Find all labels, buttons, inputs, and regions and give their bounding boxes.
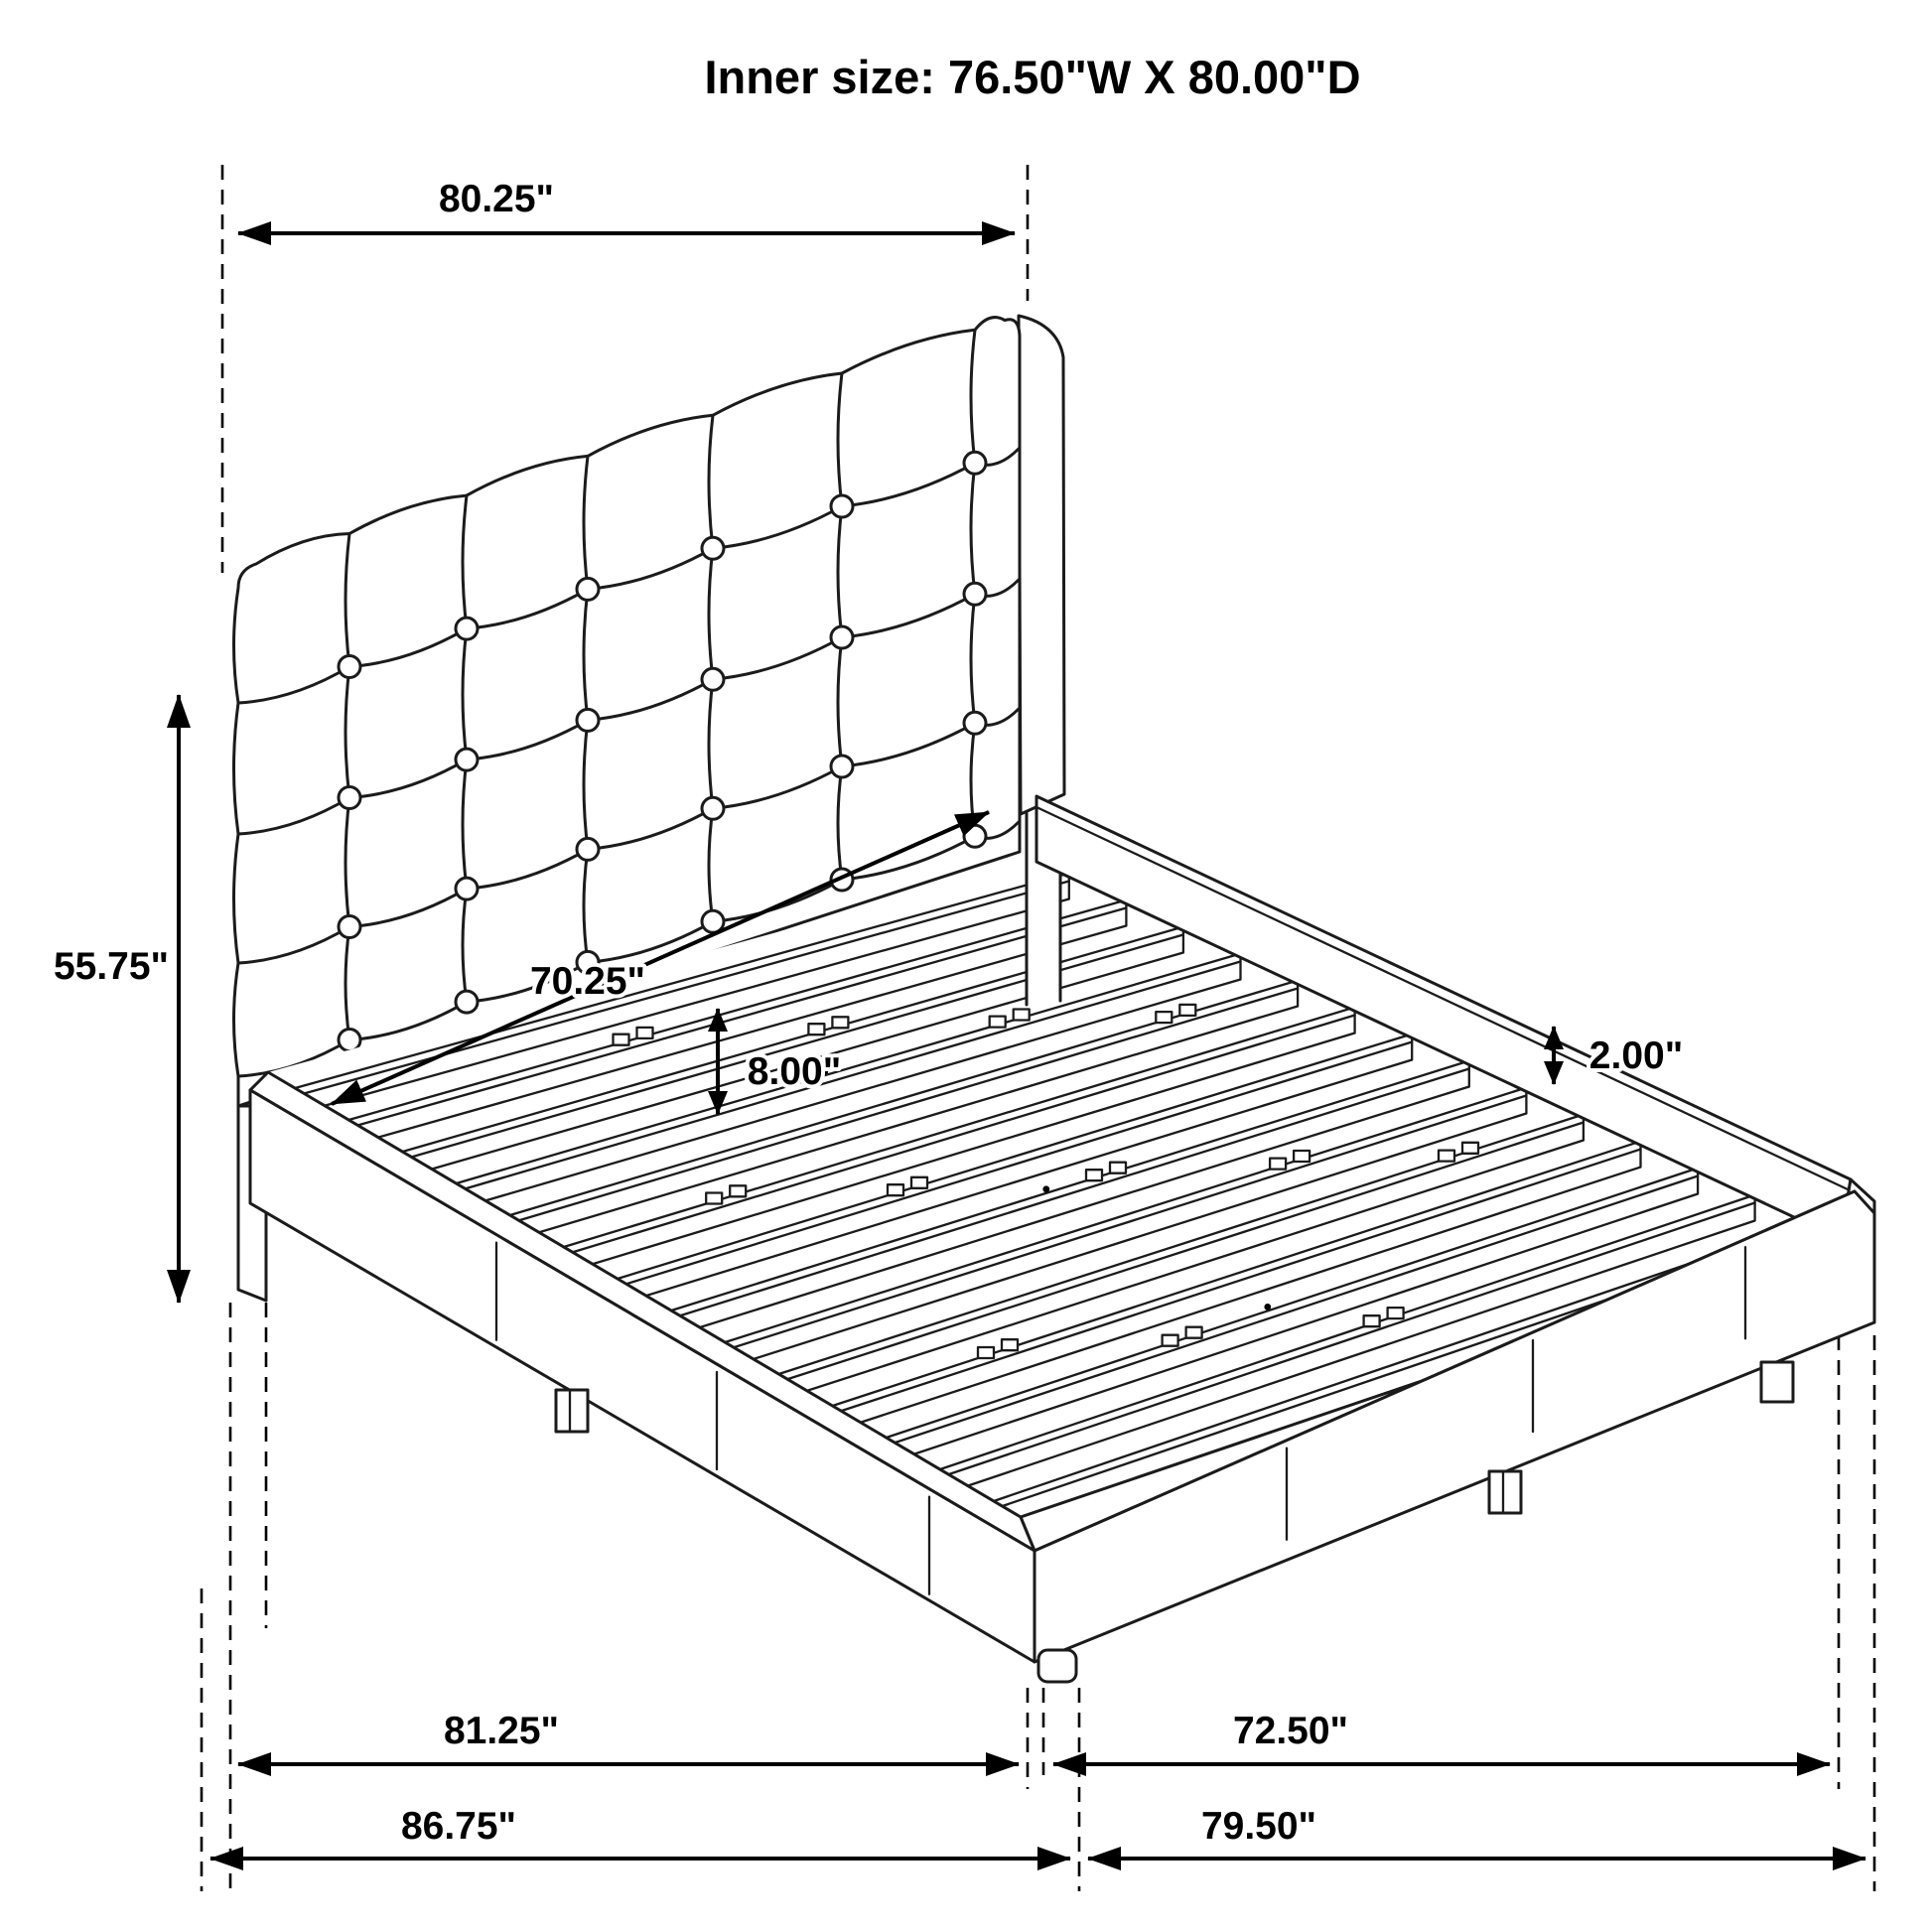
bed-dimension-diagram: Inner size: 76.50"W X 80.00"D 80.25" 55.… [0, 0, 1932, 1932]
dim-label-overall-width: 79.50" [1201, 1805, 1316, 1848]
dim-label-base-width-inner: 72.50" [1233, 1710, 1348, 1752]
dim-label-deck-height: 8.00" [748, 1050, 841, 1093]
bed-dimension-diagram-page: Inner size: 76.50"W X 80.00"D 80.25" 55.… [0, 0, 1932, 1932]
dim-label-overall-length: 86.75" [401, 1805, 516, 1848]
title-text: Inner size: 76.50"W X 80.00"D [704, 51, 1360, 103]
dim-label-top-width: 80.25" [439, 178, 554, 220]
dim-label-base-length-inner: 81.25" [444, 1710, 559, 1752]
dim-label-rail-thickness: 2.00" [1589, 1035, 1683, 1077]
dim-label-headboard-height: 55.75" [54, 945, 169, 988]
dim-label-inner-diagonal: 70.25" [530, 960, 645, 1003]
